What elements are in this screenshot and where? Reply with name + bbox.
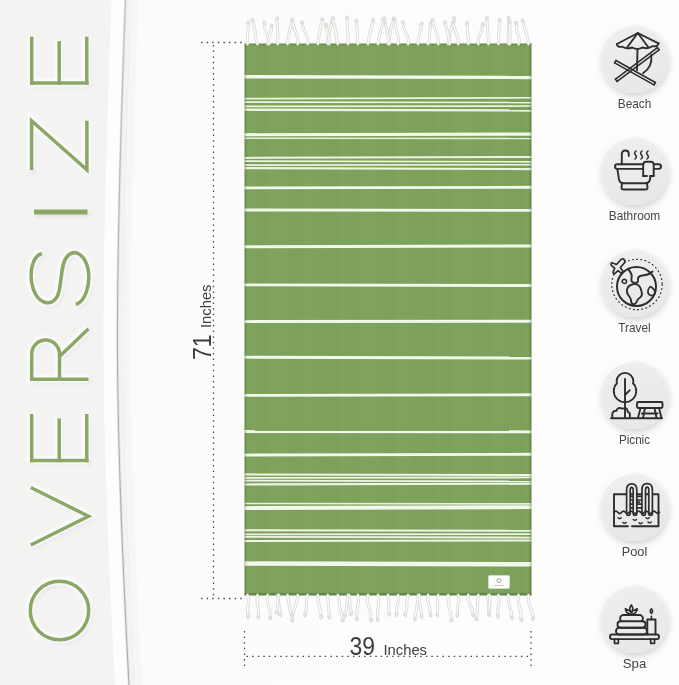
svg-text:Bathroom: Bathroom — [609, 208, 661, 223]
svg-text:Beach: Beach — [618, 96, 652, 111]
svg-text:39: 39 — [350, 631, 376, 661]
svg-text:Picnic: Picnic — [619, 432, 650, 447]
svg-text:Spa: Spa — [623, 656, 647, 671]
svg-text:Inches: Inches — [384, 641, 428, 658]
svg-text:71: 71 — [187, 334, 217, 360]
svg-text:Pool: Pool — [622, 544, 648, 559]
svg-text:Travel: Travel — [618, 320, 651, 335]
svg-text:Inches: Inches — [197, 284, 214, 328]
